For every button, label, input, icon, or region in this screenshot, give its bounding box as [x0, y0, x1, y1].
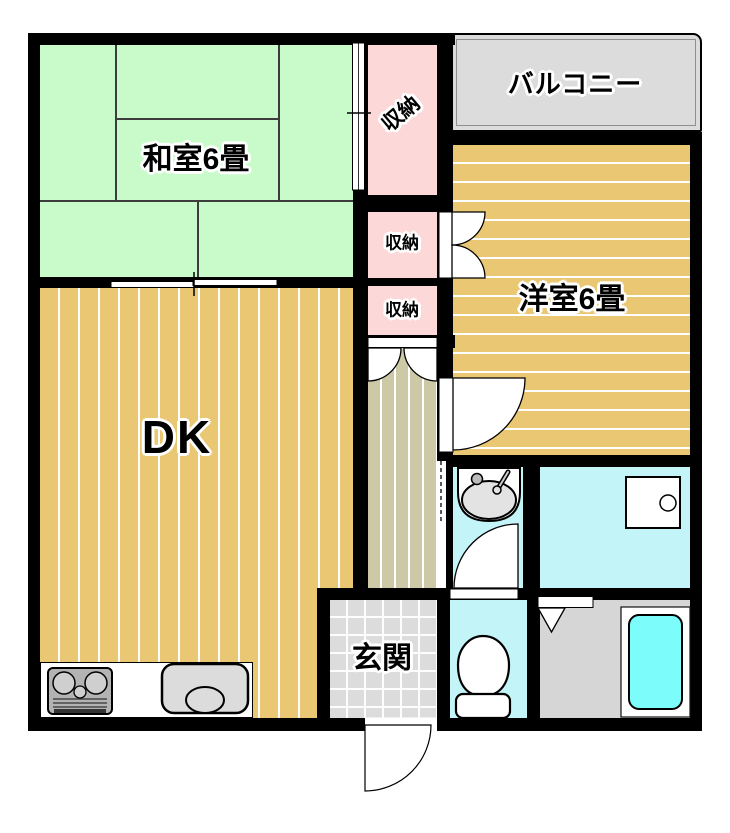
room-label-youshitsu: 洋室6畳: [519, 285, 626, 315]
washing-machine-icon: [626, 477, 680, 528]
room-label-closet-bottom: 収納: [385, 302, 419, 319]
room-label-genkan: 玄関: [352, 644, 412, 674]
room-label-washitsu: 和室6畳: [143, 145, 250, 175]
washbasin-icon: [458, 468, 520, 521]
sliding-door-closet-top: [347, 43, 371, 190]
door-entrance: [365, 718, 437, 792]
door-bathroom: [538, 597, 593, 633]
doors-and-fixtures-layer: [0, 0, 730, 833]
kitchen-sink-icon: [162, 664, 248, 713]
room-label-balcony: バルコニー: [508, 71, 642, 97]
double-door-closet-mid: [439, 212, 485, 278]
door-youshitsu: [439, 378, 525, 452]
toilet-icon: [456, 636, 510, 718]
door-toilet: [450, 524, 518, 599]
bathtub-icon: [621, 607, 690, 717]
stove-icon: [48, 668, 112, 714]
floor-plan: 和室6畳 バルコニー 収納 収納 収納 洋室6畳 DK 玄関: [0, 0, 730, 833]
room-label-closet-mid: 収納: [385, 235, 419, 252]
room-label-dk: DK: [142, 414, 212, 460]
double-door-closet-bottom: [368, 338, 437, 382]
sliding-door-washitsu-dk: [111, 272, 277, 296]
opening-washroom: [437, 461, 446, 588]
